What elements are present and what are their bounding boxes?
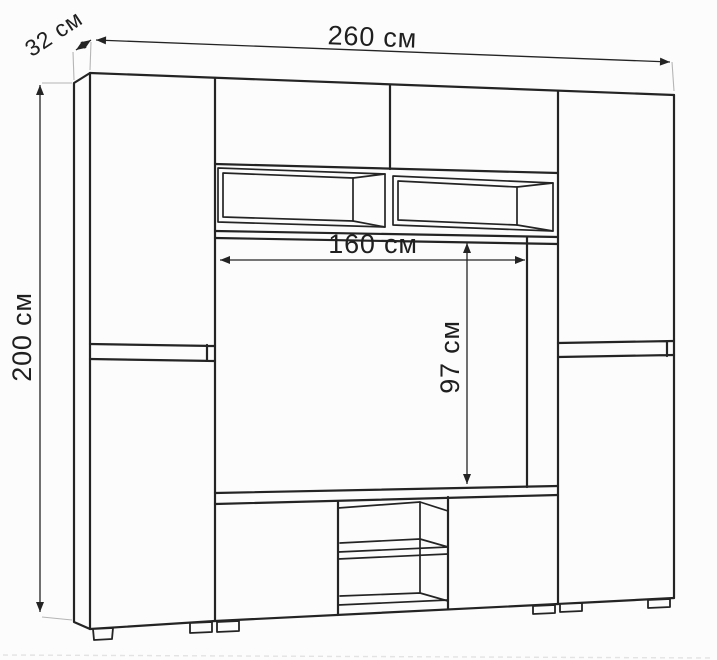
stand-bottom-panel: [338, 593, 448, 605]
wall-unit-drawing: 260 см 32 см 200 см 160 см 97 см: [0, 0, 717, 660]
left-box-depth-lines: [353, 174, 385, 227]
countertop: [215, 486, 558, 504]
right-wardrobe: [558, 91, 674, 604]
total-height-label: 200 см: [7, 292, 37, 381]
total-width-label: 260 см: [327, 20, 418, 53]
page-edge-artifact: [3, 655, 714, 658]
left-box-inner: [223, 173, 353, 221]
extension-line: [73, 52, 74, 80]
top-cabinets: [215, 85, 558, 173]
furniture-dimension-diagram: 260 см 32 см 200 см 160 см 97 см: [0, 0, 717, 660]
wall-unit-outline: [74, 73, 674, 629]
feet: [93, 599, 670, 640]
top-edge: [90, 73, 674, 95]
foot: [648, 599, 670, 608]
foot: [217, 621, 239, 632]
right-wardrobe-handle-groove: [558, 341, 674, 357]
niche-height-label: 97 см: [435, 320, 465, 394]
stand-middle-shelf: [338, 539, 448, 559]
foot: [533, 605, 555, 614]
dimension-niche-height: 97 см: [435, 243, 467, 484]
tv-stand: [215, 486, 558, 615]
right-box-depth-lines: [517, 183, 553, 231]
dimension-niche-width: 160 см: [220, 229, 525, 260]
left-wardrobe: [90, 78, 215, 621]
dimension-total-height: 200 см: [7, 83, 72, 620]
left-side-panel: [74, 73, 90, 629]
dimension-total-width: 260 см: [90, 20, 674, 91]
depth-label: 32 см: [20, 5, 87, 62]
extension-line: [42, 617, 72, 620]
extension-line: [90, 42, 91, 70]
stand-compartment-ceiling: [338, 502, 448, 511]
foot: [560, 603, 582, 612]
top-cabinet-bottom-edge: [215, 164, 558, 173]
foot: [93, 628, 113, 640]
dimension-line: [76, 40, 91, 50]
dimension-depth: 32 см: [20, 5, 91, 80]
niche-width-label: 160 см: [328, 229, 417, 259]
right-box-inner: [398, 181, 517, 225]
left-wardrobe-handle-groove: [90, 344, 215, 361]
extension-line: [672, 62, 674, 91]
foot: [190, 622, 212, 633]
